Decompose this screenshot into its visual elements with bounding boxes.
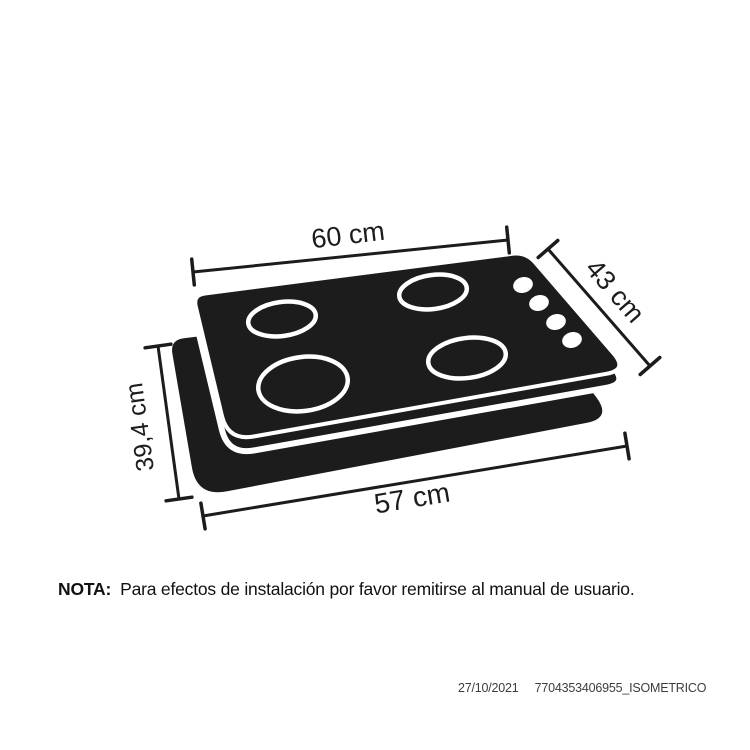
- note-text: Para efectos de instalación por favor re…: [120, 579, 634, 599]
- dimension-tick: [201, 503, 205, 529]
- note-label: NOTA:: [58, 579, 111, 599]
- installation-note: NOTA:Para efectos de instalación por fav…: [58, 579, 635, 600]
- dimension-tick: [625, 433, 629, 459]
- dimension-tick: [145, 344, 171, 348]
- dimension-tick: [166, 497, 192, 501]
- dimension-label-left-depth: 39,4 cm: [120, 381, 160, 473]
- cooktop-isometric-drawing: 60 cm 43 cm 39,4 cm 57 cm: [0, 0, 750, 750]
- dimension-label-side-depth: 43 cm: [580, 253, 651, 328]
- dimension-label-top-width: 60 cm: [310, 216, 387, 254]
- dimension-tick: [192, 259, 195, 285]
- dimension-tick: [507, 227, 510, 253]
- footer-reference: 7704353406955_ISOMETRICO: [535, 681, 707, 695]
- isometric-dimension-page: 60 cm 43 cm 39,4 cm 57 cm NOTA:Para efec…: [0, 0, 750, 750]
- dimension-label-bottom-width: 57 cm: [372, 476, 452, 519]
- footer-date: 27/10/2021: [458, 681, 519, 695]
- footer: 27/10/20217704353406955_ISOMETRICO: [458, 681, 706, 695]
